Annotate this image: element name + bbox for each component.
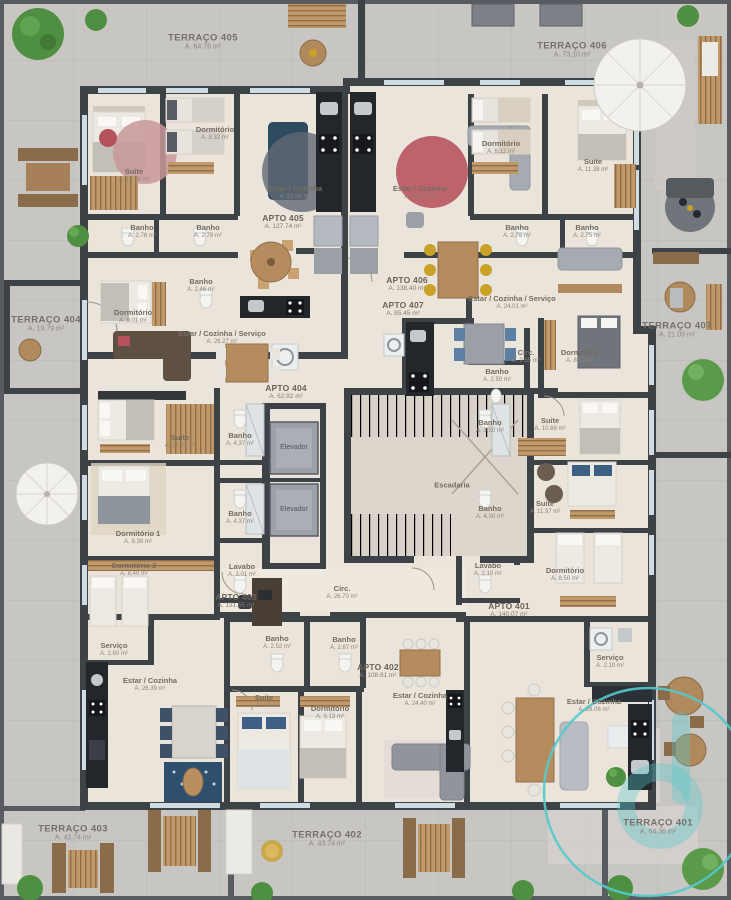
room-label: BanhoA. 4.37 m² — [226, 432, 254, 448]
room-label-area: A. 2.76 m² — [503, 233, 531, 240]
room-label-title: Banho — [128, 224, 156, 233]
room-label-title: Banho — [476, 505, 504, 514]
room-label: SuiteA. 11.97 m² — [530, 500, 561, 516]
room-label-title: Estar / Cozinha — [268, 185, 322, 194]
room-label-title: Estar / Cozinha — [393, 692, 447, 701]
room-label: SuiteA. 11.38 m² — [578, 158, 609, 174]
room-label: DormitórioA. 8.12 m² — [482, 140, 520, 156]
apartment-label-title: APTO 407 — [382, 300, 424, 310]
room-label-area: A. 2.76 m² — [128, 233, 156, 240]
room-label-area: A. 8.38 m² — [116, 539, 161, 546]
room-label: ServiçoA. 2.80 m² — [100, 642, 128, 658]
room-label: BanhoA. 2.46 m² — [187, 278, 215, 294]
apartment-label-title: APTO 406 — [386, 275, 428, 285]
apartment-label-area: A. 131.55 m² — [215, 602, 257, 610]
room-label-title: Dormitório — [311, 705, 349, 714]
room-label: SuiteA. 10.68 m² — [534, 417, 565, 433]
room-label: DormitórioA. 9.01 m² — [114, 309, 152, 325]
room-label-title: Banho — [503, 224, 531, 233]
room-label-title: Dormitório — [114, 309, 152, 318]
terrace-label-title: TERRAÇO 406 — [537, 40, 607, 51]
room-label-area: A. 2.10 m² — [596, 663, 624, 670]
room-label-area: A. 2.01 m² — [228, 572, 256, 579]
labels-layer: TERRAÇO 405A. 64.76 m²TERRAÇO 406A. 73.1… — [0, 0, 731, 900]
room-label-area: A. 4.30 m² — [476, 514, 504, 521]
apartment-label-area: A. 85.45 m² — [382, 310, 424, 318]
terrace-label-title: TERRAÇO 403 — [38, 823, 108, 834]
room-label-title: Banho — [330, 636, 358, 645]
room-label-title: Banho — [476, 419, 504, 428]
room-label-area: A. 8.50 m² — [546, 576, 584, 583]
room-label-title: Dormitório 1 — [116, 530, 161, 539]
room-label-title: Dormitório — [546, 567, 584, 576]
room-label-area: A. 22.58 m² — [268, 194, 322, 201]
apartment-label: APTO 405A. 127.74 m² — [262, 213, 304, 231]
terrace-label-area: A. 21.09 m² — [642, 331, 712, 339]
room-label: BanhoA. 2.76 m² — [128, 224, 156, 240]
room-label: Dormitório 2A. 8.49 m² — [112, 562, 157, 578]
terrace-label-area: A. 43.74 m² — [292, 840, 362, 848]
room-label-area: A. 12.16 m² — [118, 177, 149, 184]
room-label-title: Dormitório — [196, 126, 234, 135]
room-label-title: Banho — [573, 224, 601, 233]
room-label-title: Suite — [165, 434, 196, 443]
room-label-area: A. 9.13 m² — [311, 714, 349, 721]
apartment-label-area: A. 140.07 m² — [488, 611, 530, 619]
room-label: BanhoA. 4.30 m² — [476, 505, 504, 521]
room-label: Estar / CozinhaA. 22.58 m² — [268, 185, 322, 201]
room-label: Estar / CozinhaA. 23.30 m² — [393, 185, 447, 201]
room-label-area: A. 11.72 m² — [165, 443, 196, 450]
terrace-label: TERRAÇO 404A. 19.79 m² — [11, 314, 81, 333]
room-label: SuiteA. 11.80 m² — [249, 694, 280, 710]
room-label: DormitórioA. 8.32 m² — [196, 126, 234, 142]
room-label-title: Lavabo — [474, 562, 502, 571]
room-label-area: A. 8.32 m² — [196, 135, 234, 142]
room-label: BanhoA. 3.50 m² — [476, 419, 504, 435]
core-label-title: Elevador — [280, 444, 308, 452]
apartment-label-title: APTO 401 — [488, 601, 530, 611]
apartment-label: APTO 406A. 138.40 m² — [386, 275, 428, 293]
room-label-title: Circ. — [512, 349, 540, 358]
room-label: Circ.A. 2.55 m² — [512, 349, 540, 365]
room-label: Estar / CozinhaA. 28.06 m² — [567, 698, 621, 714]
room-label: DormitórioA. 8.50 m² — [561, 349, 599, 365]
room-label-title: Banho — [263, 635, 291, 644]
room-label: LavaboA. 2.10 m² — [474, 562, 502, 578]
room-label-area: A. 2.52 m² — [263, 644, 291, 651]
terrace-label-title: TERRAÇO 404 — [11, 314, 81, 325]
room-label-area: A. 3.50 m² — [476, 428, 504, 435]
apartment-label-area: A. 62.92 m² — [265, 393, 307, 401]
room-label: BanhoA. 2.50 m² — [483, 368, 511, 384]
terrace-label-title: TERRAÇO 401 — [623, 817, 693, 828]
apartment-label-title: APTO 404 — [265, 383, 307, 393]
terrace-label: TERRAÇO 401A. 64.36 m² — [623, 817, 693, 836]
apartment-label-title: APTO 402 — [357, 662, 399, 672]
apartment-label-title: APTO 403 — [215, 592, 257, 602]
room-label-title: Dormitório — [561, 349, 599, 358]
room-label: Estar / Cozinha / ServiçoA. 26.27 m² — [178, 330, 266, 346]
terrace-label-area: A. 73.10 m² — [537, 51, 607, 59]
room-label-area: A. 24.01 m² — [468, 304, 556, 311]
room-label-title: Estar / Cozinha — [393, 185, 447, 194]
room-label-area: A. 11.38 m² — [578, 167, 609, 174]
room-label: BanhoA. 2.76 m² — [503, 224, 531, 240]
core-label-title: Elevador — [280, 506, 308, 514]
room-label: BanhoA. 2.75 m² — [573, 224, 601, 240]
terrace-label-title: TERRAÇO 405 — [168, 32, 238, 43]
apartment-label-area: A. 127.74 m² — [262, 223, 304, 231]
room-label-title: Estar / Cozinha / Serviço — [178, 330, 266, 339]
terrace-label: TERRAÇO 402A. 43.74 m² — [292, 829, 362, 848]
room-label-area: A. 4.37 m² — [226, 441, 254, 448]
room-label: SuiteA. 12.16 m² — [118, 168, 149, 184]
room-label-title: Serviço — [100, 642, 128, 651]
core-label: Elevador — [280, 444, 308, 452]
room-label-title: Serviço — [596, 654, 624, 663]
apartment-label: APTO 402A. 108.81 m² — [357, 662, 399, 680]
room-label-area: A. 2.10 m² — [474, 571, 502, 578]
room-label: BanhoA. 2.87 m² — [330, 636, 358, 652]
room-label-title: Suite — [530, 500, 561, 509]
apartment-label: APTO 401A. 140.07 m² — [488, 601, 530, 619]
room-label: LavaboA. 2.01 m² — [228, 563, 256, 579]
room-label-area: A. 2.46 m² — [187, 287, 215, 294]
core-label-title: Escadaria — [434, 482, 469, 491]
room-label-area: A. 8.12 m² — [482, 149, 520, 156]
room-label: Dormitório 1A. 8.38 m² — [116, 530, 161, 546]
room-label-title: Estar / Cozinha — [567, 698, 621, 707]
room-label-area: A. 2.55 m² — [512, 358, 540, 365]
room-label-title: Banho — [226, 510, 254, 519]
room-label: DormitórioA. 8.50 m² — [546, 567, 584, 583]
room-label: Estar / CozinhaA. 26.39 m² — [123, 677, 177, 693]
room-label: BanhoA. 2.52 m² — [263, 635, 291, 651]
room-label-title: Suite — [534, 417, 565, 426]
room-label-area: A. 26.39 m² — [123, 686, 177, 693]
terrace-label-area: A. 43.74 m² — [38, 834, 108, 842]
room-label-title: Suite — [118, 168, 149, 177]
room-label-title: Banho — [187, 278, 215, 287]
apartment-label-area: A. 108.81 m² — [357, 672, 399, 680]
room-label-area: A. 2.80 m² — [100, 651, 128, 658]
apartment-label-area: A. 138.40 m² — [386, 285, 428, 293]
room-label-area: A. 8.50 m² — [561, 358, 599, 365]
room-label-title: Dormitório 2 — [112, 562, 157, 571]
room-label: DormitórioA. 9.13 m² — [311, 705, 349, 721]
room-label: Estar / Cozinha / ServiçoA. 24.01 m² — [468, 295, 556, 311]
room-label: Estar / CozinhaA. 24.40 m² — [393, 692, 447, 708]
terrace-label-area: A. 64.36 m² — [623, 828, 693, 836]
room-label-title: Dormitório — [482, 140, 520, 149]
room-label-title: Estar / Cozinha — [123, 677, 177, 686]
room-label-area: A. 11.80 m² — [249, 703, 280, 710]
core-label-area: A. 26.70 m² — [326, 594, 357, 601]
room-label-area: A. 28.06 m² — [567, 707, 621, 714]
apartment-label: APTO 407A. 85.45 m² — [382, 300, 424, 318]
terrace-label-area: A. 19.79 m² — [11, 325, 81, 333]
terrace-label-title: TERRAÇO 402 — [292, 829, 362, 840]
terrace-label-title: TERRAÇO 407 — [642, 320, 712, 331]
room-label-area: A. 23.30 m² — [393, 194, 447, 201]
core-label-title: Circ. — [326, 585, 357, 594]
room-label-title: Banho — [226, 432, 254, 441]
room-label-area: A. 2.50 m² — [483, 377, 511, 384]
room-label-area: A. 2.78 m² — [194, 233, 222, 240]
room-label-area: A. 9.01 m² — [114, 318, 152, 325]
apartment-label-title: APTO 405 — [262, 213, 304, 223]
core-label: Elevador — [280, 506, 308, 514]
room-label: BanhoA. 2.78 m² — [194, 224, 222, 240]
core-label: Circ.A. 26.70 m² — [326, 585, 357, 601]
room-label-title: Suite — [249, 694, 280, 703]
room-label-area: A. 2.87 m² — [330, 645, 358, 652]
terrace-label: TERRAÇO 403A. 43.74 m² — [38, 823, 108, 842]
room-label: ServiçoA. 2.10 m² — [596, 654, 624, 670]
room-label-area: A. 11.97 m² — [530, 509, 561, 516]
room-label: BanhoA. 4.37 m² — [226, 510, 254, 526]
room-label-title: Banho — [194, 224, 222, 233]
terrace-label-area: A. 64.76 m² — [168, 43, 238, 51]
apartment-label: APTO 404A. 62.92 m² — [265, 383, 307, 401]
room-label-area: A. 26.27 m² — [178, 339, 266, 346]
room-label-title: Lavabo — [228, 563, 256, 572]
terrace-label: TERRAÇO 406A. 73.10 m² — [537, 40, 607, 59]
room-label: SuiteA. 11.72 m² — [165, 434, 196, 450]
room-label-area: A. 24.40 m² — [393, 701, 447, 708]
apartment-label: APTO 403A. 131.55 m² — [215, 592, 257, 610]
floor-plan: TERRAÇO 405A. 64.76 m²TERRAÇO 406A. 73.1… — [0, 0, 731, 900]
room-label-area: A. 8.49 m² — [112, 571, 157, 578]
terrace-label: TERRAÇO 405A. 64.76 m² — [168, 32, 238, 51]
room-label-title: Estar / Cozinha / Serviço — [468, 295, 556, 304]
room-label-title: Banho — [483, 368, 511, 377]
room-label-area: A. 4.37 m² — [226, 519, 254, 526]
terrace-label: TERRAÇO 407A. 21.09 m² — [642, 320, 712, 339]
room-label-area: A. 2.75 m² — [573, 233, 601, 240]
room-label-title: Suite — [578, 158, 609, 167]
core-label: Escadaria — [434, 482, 469, 491]
room-label-area: A. 10.68 m² — [534, 426, 565, 433]
